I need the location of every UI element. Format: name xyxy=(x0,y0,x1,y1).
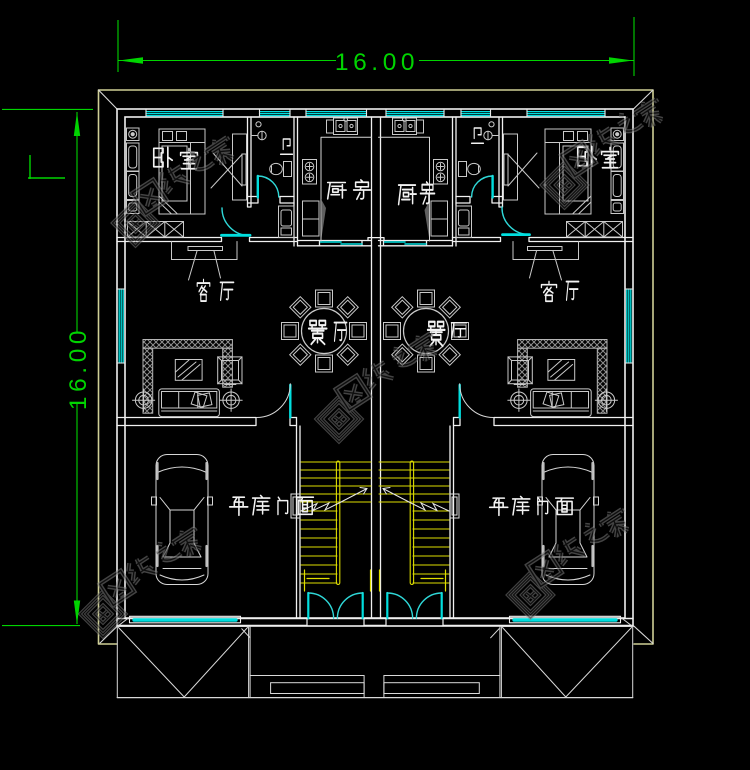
svg-text:16.00: 16.00 xyxy=(65,326,92,410)
svg-text:16.00: 16.00 xyxy=(335,49,419,76)
